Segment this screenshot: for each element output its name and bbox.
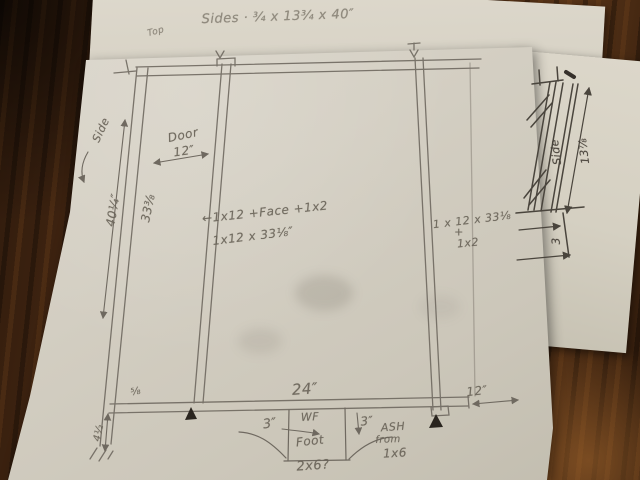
rail-width-dim: ⅝: [130, 386, 142, 399]
foot-offset-right-dim: 3″: [360, 413, 375, 428]
side-sketch-toe-dim: 3: [549, 237, 563, 246]
dimension-lines: [82, 120, 518, 451]
door-width-dim: 12″: [172, 143, 195, 160]
right-note-line3: 1x2: [456, 236, 479, 251]
foot-offset-left-dim: 3″: [262, 416, 278, 433]
foot-block-label: Foot: [295, 433, 325, 450]
foot-block-size: 2x6?: [296, 457, 330, 474]
right-bay-width-dim: 12″: [466, 383, 489, 399]
ash-note-line1: ASH: [380, 420, 405, 435]
face-frame-drawing: [90, 43, 481, 461]
ash-note-line2: from: [375, 434, 401, 446]
ash-note-line3: 1x6: [383, 445, 408, 460]
photo-of-woodworking-sketch: Sides · ¾ x 13¾ x 40″ Top Door 12″ 40¼″ …: [0, 0, 640, 480]
bottom-width-dim: 24″: [291, 379, 318, 399]
pencil-linework: [0, 0, 640, 480]
foot-block-label-top: WF: [301, 410, 320, 424]
